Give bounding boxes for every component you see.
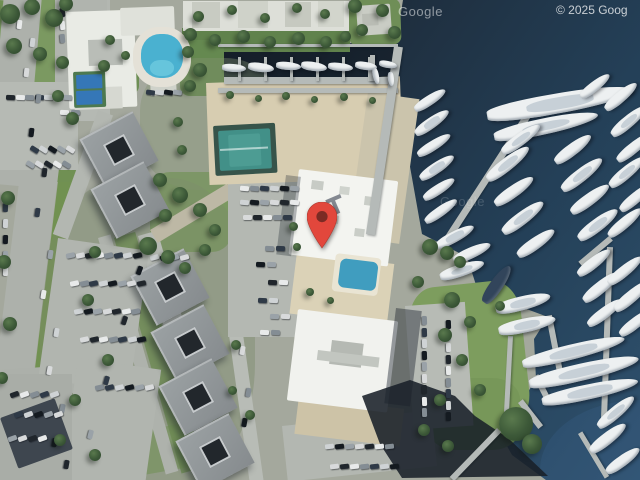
tree [179,262,191,274]
parked-car [290,200,299,206]
parked-car [253,215,262,220]
tree [228,386,237,395]
parked-car [3,235,8,244]
tree [260,13,270,23]
parked-car [335,444,344,450]
parked-car [290,186,299,192]
tree [193,11,204,22]
tree [193,203,207,217]
tree [231,340,241,350]
parked-car [240,200,249,206]
tree [438,328,452,342]
parked-car [250,186,259,192]
tree [177,145,187,155]
tree [54,434,66,446]
tree [56,56,69,69]
parked-car [422,373,427,382]
parked-car [270,314,279,319]
tree [6,38,22,54]
parked-car [280,200,289,206]
tree [434,394,446,406]
apartment-courtyard [114,184,146,216]
parked-car [345,444,354,450]
tree [293,243,301,251]
building [76,90,102,105]
tree [1,191,15,205]
google-watermark-faint: Google [440,194,485,209]
parked-car [268,280,277,285]
tree [464,316,476,328]
dock-pier [218,44,398,47]
parked-car [350,464,359,470]
tree [102,354,114,366]
building [339,186,350,195]
tree [292,32,305,45]
tree [82,294,94,306]
parked-car [271,330,280,335]
parked-car [28,128,34,138]
tree [184,28,197,41]
satellite-map-canvas[interactable]: GoogleGoogle© 2025 Goog [0,0,640,480]
tree [209,34,221,46]
apartment-courtyard [182,381,214,413]
parked-car [380,464,389,470]
parked-car [340,464,349,470]
tree [311,96,318,103]
tree [184,80,196,92]
parked-car [446,412,451,421]
tree [412,276,424,288]
parked-car [446,377,451,386]
parked-car [3,219,8,228]
tree [121,51,130,60]
parked-car [283,215,292,220]
parked-car [258,298,267,303]
tree [52,90,64,102]
parked-car [276,246,285,251]
parked-car [330,464,339,470]
parked-car [243,215,252,220]
tree [173,117,183,127]
parked-car [446,354,451,363]
apartment-courtyard [103,134,135,166]
parked-car [256,262,265,267]
tree [98,60,110,72]
parked-car [263,215,272,220]
copyright-attribution: © 2025 Goog [556,3,640,17]
tree [255,95,262,102]
tree [69,394,81,406]
tree [161,250,175,264]
parked-car [270,200,279,206]
parked-car [375,444,384,450]
parked-car [260,186,269,192]
parked-car [325,444,334,450]
parked-car [365,444,374,450]
parked-car [385,444,394,450]
tree [153,173,167,187]
building [150,60,174,76]
tree [474,384,486,396]
tree [105,35,115,45]
tree [340,31,351,42]
parked-car [355,444,364,450]
parked-car [279,280,288,285]
parked-car [446,400,451,409]
tree [522,434,542,454]
dock-pier [218,88,398,93]
tree [282,92,290,100]
parked-car [260,200,269,206]
parked-car [280,186,289,192]
building [337,258,378,291]
parked-car [250,200,259,206]
parked-car [6,95,15,100]
parked-car [17,20,23,29]
parked-car [270,186,279,192]
parked-car [422,339,427,348]
tree [442,440,454,452]
apartment-courtyard [199,436,231,468]
tree [418,424,430,436]
building [311,180,324,190]
parked-car [422,396,427,405]
tree [289,222,298,231]
tree [66,112,79,125]
tree [3,317,17,331]
parked-car [446,389,451,398]
water-shade [540,400,640,480]
tree [422,239,438,255]
tree [327,297,334,304]
tree [444,292,460,308]
parked-car [269,298,278,303]
parking-lot [61,358,161,480]
parked-car [360,464,369,470]
parked-car [173,89,183,95]
tree [264,36,276,48]
parked-car [422,362,427,371]
apartment-courtyard [174,327,206,359]
tree [182,46,194,58]
parked-car [63,95,72,100]
tree [306,288,314,296]
tree [209,224,221,236]
parked-car [36,94,42,103]
tree [199,244,211,256]
apartment-courtyard [154,271,186,303]
parked-car [240,186,249,192]
parked-car [41,168,47,178]
parked-car [390,464,399,470]
parked-car [15,95,24,100]
parked-car [60,34,66,43]
tree [340,93,348,101]
tree [33,47,47,61]
tree [356,24,368,36]
parked-car [260,330,269,335]
parked-car [281,314,290,319]
parked-car [30,38,36,47]
google-watermark: Google [398,4,443,19]
tree [292,3,302,13]
location-pin-icon[interactable] [307,202,337,250]
tree [454,256,466,268]
tree [369,97,376,104]
tree [227,5,237,15]
tree [139,237,157,255]
boat-superstructure [513,318,541,331]
tree [388,26,401,39]
tree [495,301,505,311]
parked-car [370,464,379,470]
parked-car [422,327,427,336]
tree [245,410,255,420]
tree [440,246,454,260]
building [76,74,102,89]
tree [193,63,207,77]
tree [376,4,389,17]
tree [320,9,330,19]
parked-car [273,215,282,220]
tree [320,36,332,48]
tree [456,354,468,366]
tree [45,9,63,27]
parked-car [446,366,451,375]
parked-car [422,385,427,394]
tree [226,91,234,99]
parked-car [25,95,34,100]
parked-car [422,350,427,359]
tree [89,246,101,258]
tree [89,449,101,461]
parked-car [267,262,276,267]
parked-car [422,316,427,325]
parked-car [422,408,427,417]
tree [172,187,188,203]
tree [0,4,20,24]
parked-car [446,343,451,352]
parked-car [265,246,274,251]
tree [159,209,172,222]
building [354,228,365,237]
parked-car [24,68,30,77]
tree [237,30,250,43]
